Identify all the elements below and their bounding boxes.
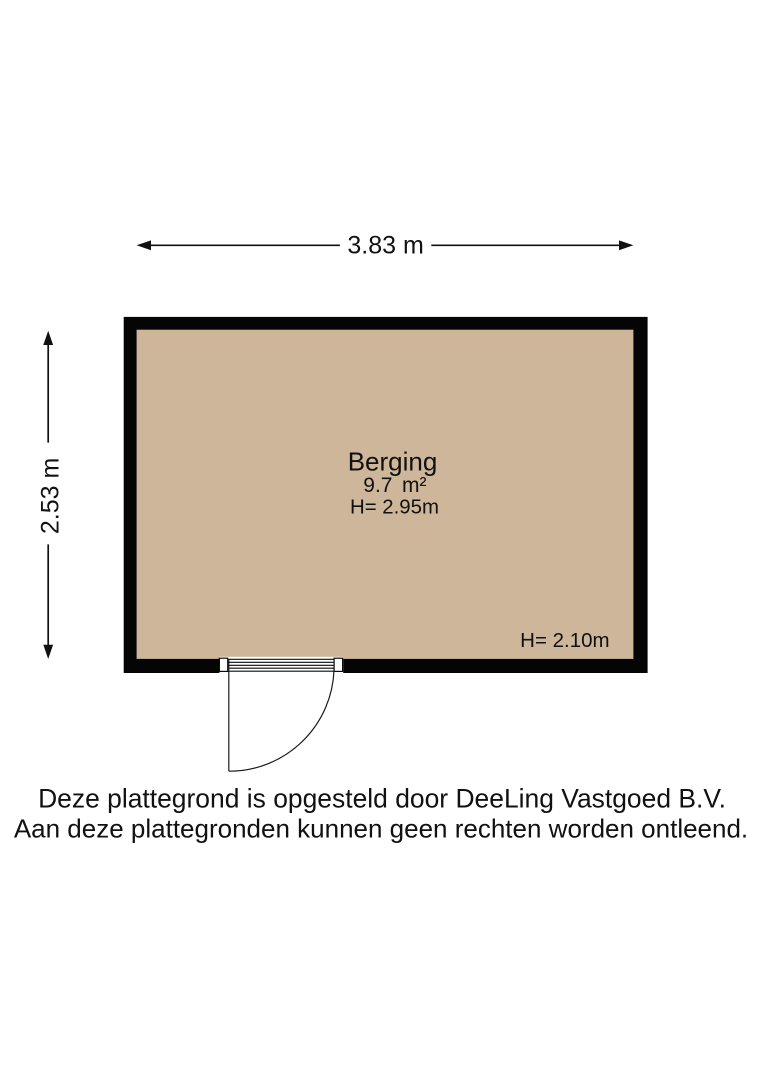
svg-text:H= 2.10m: H= 2.10m <box>520 629 609 652</box>
svg-text:H= 2.95m: H= 2.95m <box>350 497 439 519</box>
svg-text:Berging: Berging <box>348 447 438 477</box>
svg-text:Aan deze plattegronden kunnen: Aan deze plattegronden kunnen geen recht… <box>14 813 748 843</box>
svg-text:2.53 m: 2.53 m <box>37 458 65 534</box>
svg-text:Deze plattegrond is opgesteld: Deze plattegrond is opgesteld door DeeLi… <box>38 783 726 813</box>
svg-text:3.83 m: 3.83 m <box>347 232 423 260</box>
